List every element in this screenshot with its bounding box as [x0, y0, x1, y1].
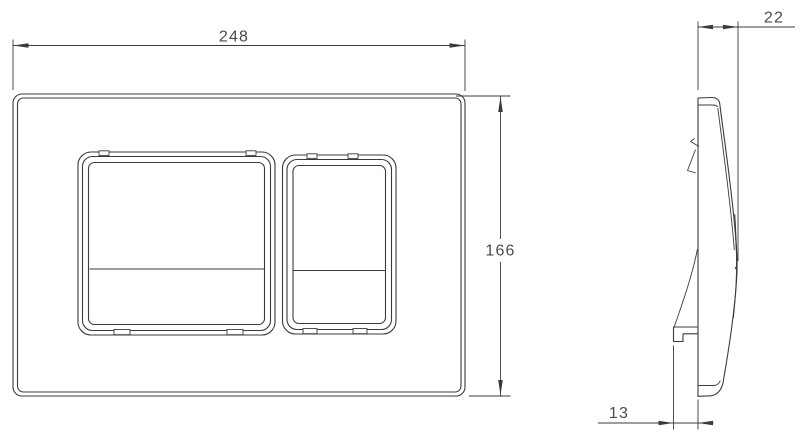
- side-view: [674, 97, 738, 396]
- large-flush-button: [78, 151, 275, 335]
- side-rear-housing-curve: [674, 249, 697, 327]
- small-button-face: [293, 166, 386, 324]
- small-flush-button: [283, 154, 397, 334]
- dimension-side-offset: 13: [598, 346, 714, 430]
- width-dimension-label: 248: [219, 29, 249, 46]
- depth-dimension-label: 22: [764, 10, 784, 27]
- side-top-cap-inner-line: [698, 105, 718, 107]
- offset-arrow-right: [698, 421, 713, 425]
- large-button-bottom-nub-left: [114, 330, 130, 335]
- side-spring-clip-lower: [688, 150, 697, 174]
- large-button-outer-ring: [78, 152, 275, 335]
- small-button-bottom-nub-right: [353, 329, 367, 334]
- small-button-top-nub-right: [348, 154, 358, 159]
- technical-drawing-page: 248 166 22 13: [0, 0, 800, 437]
- height-arrow-top: [498, 97, 503, 113]
- side-bottom-cap-inner-line: [698, 381, 720, 386]
- front-view: [13, 94, 465, 396]
- small-button-bottom-nub-left: [303, 329, 317, 334]
- side-bulge-point: [735, 267, 738, 270]
- plate-inner-outline: [18, 98, 462, 392]
- large-button-mid-ring: [83, 157, 271, 331]
- large-button-top-nub-right: [246, 151, 256, 156]
- plate-outer-outline: [13, 94, 465, 396]
- drawing-svg: 248 166 22 13: [0, 0, 800, 437]
- small-button-top-nub-left: [307, 154, 317, 159]
- side-mounting-bracket: [674, 327, 698, 342]
- height-dimension-label: 166: [485, 243, 515, 260]
- offset-dimension-label: 13: [609, 405, 629, 422]
- dimension-side-depth: 22: [698, 10, 795, 262]
- large-button-top-nub-left: [99, 151, 109, 156]
- offset-arrow-left: [659, 421, 674, 425]
- depth-arrow-left: [698, 25, 713, 29]
- large-button-bottom-nub-right: [227, 330, 243, 335]
- height-arrow-bottom: [498, 380, 503, 396]
- large-button-face: [89, 163, 265, 325]
- side-front-inner-line: [718, 108, 735, 250]
- depth-arrow-right: [723, 25, 738, 29]
- width-arrow-right: [450, 43, 466, 48]
- width-arrow-left: [13, 43, 29, 48]
- dimension-front-width: 248: [13, 29, 465, 92]
- side-outer-profile: [698, 97, 737, 396]
- small-button-mid-ring: [287, 160, 392, 330]
- small-button-outer-ring: [283, 155, 397, 334]
